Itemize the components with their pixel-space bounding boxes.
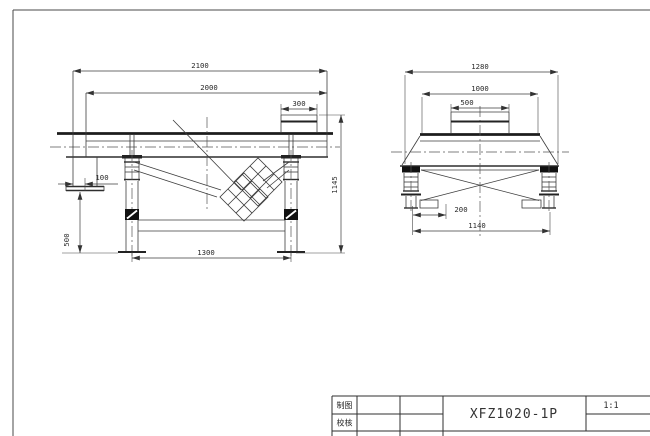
- vibration-motor: [220, 158, 282, 221]
- front-dimensions: 2100 2000 300 100 500 1300 1145: [58, 61, 345, 262]
- cad-drawing: 2100 2000 300 100 500 1300 1145: [0, 0, 650, 436]
- dim-front-trough-length: 2000: [200, 83, 218, 92]
- dim-front-outlet-height: 500: [62, 233, 71, 246]
- end-view: 1280 1000 500 200 1140: [391, 62, 569, 239]
- end-hopper: [420, 170, 541, 208]
- title-block-checked-by-label: 校核: [337, 418, 353, 428]
- front-inlet: [281, 115, 317, 133]
- dim-front-inlet-length: 300: [292, 99, 305, 108]
- drawing-scale: 1:1: [603, 401, 618, 411]
- sheet-frame: [13, 10, 650, 436]
- end-dimensions: 1280 1000 500 200 1140: [405, 62, 558, 235]
- drawing-model-number: XFZ1020-1P: [470, 407, 558, 422]
- cad-sheet: 2100 2000 300 100 500 1300 1145: [0, 0, 650, 436]
- dim-end-inlet-width: 500: [460, 98, 473, 107]
- dim-end-base-width: 1140: [468, 221, 486, 230]
- front-right-leg: [277, 135, 305, 257]
- dim-front-overall-height: 1145: [330, 176, 339, 194]
- title-block: 制图 校核 XFZ1020-1P 1:1: [332, 396, 650, 436]
- title-block-drawn-by-label: 制图: [337, 400, 353, 410]
- dim-front-outlet-offset: 100: [95, 173, 108, 182]
- dim-front-overall-length: 2100: [191, 61, 209, 70]
- end-right-mount: [539, 162, 559, 213]
- dim-end-overall-width: 1280: [471, 62, 489, 71]
- front-view: 2100 2000 300 100 500 1300 1145: [50, 61, 345, 262]
- front-left-leg: [118, 135, 146, 257]
- dim-end-outlet-offset: 200: [454, 205, 467, 214]
- dim-end-trough-width: 1000: [471, 84, 489, 93]
- dim-front-support-span: 1300: [197, 248, 215, 257]
- end-left-mount: [401, 162, 421, 213]
